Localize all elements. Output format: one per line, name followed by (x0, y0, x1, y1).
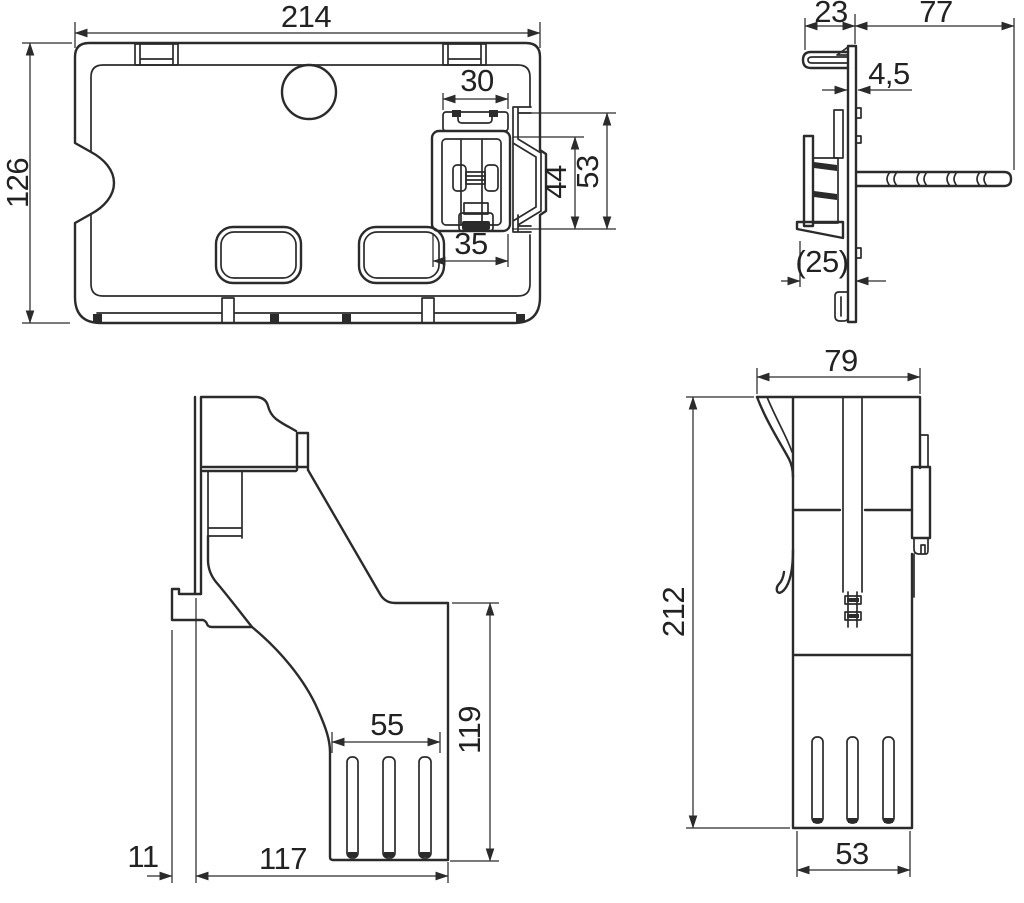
dim-label-rear-width: 79 (824, 343, 857, 378)
front-bottom-feet (93, 314, 525, 322)
push-rod (857, 172, 1011, 186)
front-view: 214 126 30 44 53 35 (0, 0, 616, 323)
rear-profile-view: 79 212 53 (656, 343, 930, 877)
dim-label-lower-height: 119 (452, 706, 487, 754)
left-profile-view: 55 119 11 117 (127, 397, 499, 883)
dim-label-rear-height: 212 (656, 587, 691, 637)
valve-bracket (432, 110, 510, 231)
front-bottom-rail (97, 298, 516, 322)
profile-block (195, 397, 308, 594)
opening-left (216, 227, 301, 283)
dim-label-valve-inner-height: 44 (538, 165, 573, 199)
profile-channel (208, 471, 242, 538)
dim-label-rod-length: 77 (919, 0, 952, 29)
profile-body (208, 470, 448, 860)
side-view: 23 77 4,5 (25) (781, 0, 1014, 322)
profile-dimensions: 55 119 11 117 (127, 598, 499, 883)
dim-label-plate-thickness: 4,5 (868, 56, 910, 91)
top-clip-right (443, 44, 486, 65)
dim-label-rear-base-width: 53 (835, 836, 868, 871)
rear-slots (812, 737, 894, 823)
panel-cutout (513, 107, 541, 232)
opening-right (359, 227, 444, 283)
profile-slots (347, 757, 431, 858)
side-valve-assembly (797, 110, 843, 238)
dim-label-valve-height: 53 (570, 155, 605, 188)
rear-guide-channel (843, 397, 862, 627)
dim-label-front-width: 214 (281, 0, 331, 34)
rear-flap-tip (777, 550, 793, 593)
dim-label-hook-depth: 23 (814, 0, 847, 29)
top-clip-left (135, 44, 178, 65)
rod-hole (282, 65, 336, 119)
dim-label-valve-width: 35 (454, 226, 487, 261)
side-dimensions: 23 77 4,5 (25) (781, 0, 1014, 287)
technical-drawing-canvas: 214 126 30 44 53 35 (0, 0, 1024, 903)
dim-label-front-height: 126 (0, 158, 35, 208)
dim-label-base-length: 117 (259, 841, 307, 876)
dim-label-slot-width: 55 (370, 707, 403, 742)
dim-label-clip-width: 30 (460, 63, 494, 98)
dim-label-foot-offset: 11 (127, 839, 158, 874)
front-dimensions: 214 126 30 44 53 35 (0, 0, 616, 323)
rear-dimensions: 79 212 53 (656, 343, 920, 877)
rear-flap (757, 397, 793, 477)
rear-body (757, 397, 920, 828)
h-clamp (453, 165, 498, 191)
dim-label-bracket-depth: (25) (795, 244, 848, 279)
plate-bottom-hook (835, 292, 848, 321)
side-plate (848, 46, 856, 322)
drawing-svg: 214 126 30 44 53 35 (0, 0, 1024, 903)
profile-foot (172, 589, 252, 627)
